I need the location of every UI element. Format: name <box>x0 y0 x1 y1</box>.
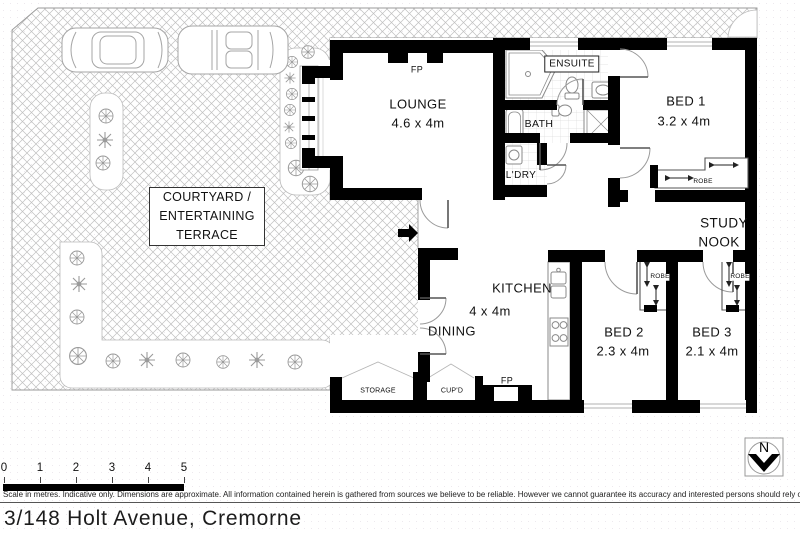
lounge-label: LOUNGE <box>389 98 446 111</box>
courtyard-label-line1: COURTYARD / <box>163 188 251 207</box>
north-arrow-icon: N <box>744 437 786 479</box>
bed2-dims: 2.3 x 4m <box>596 345 649 358</box>
north-letter: N <box>759 439 769 455</box>
storage-label: STORAGE <box>360 388 396 395</box>
lounge-dims: 4.6 x 4m <box>391 117 444 130</box>
car-icon-2 <box>178 26 288 74</box>
floorplan-drawing <box>0 0 800 450</box>
courtyard-label-line2: ENTERTAINING <box>159 207 255 226</box>
bed3-dims: 2.1 x 4m <box>685 345 738 358</box>
courtyard-label: COURTYARD / ENTERTAINING TERRACE <box>149 187 265 246</box>
scale-tick-0: 0 <box>1 462 7 474</box>
study-nook-label-2: NOOK <box>698 235 739 249</box>
disclaimer-text: Scale in metres. Indicative only. Dimens… <box>0 489 800 503</box>
scale-tick-5: 5 <box>181 462 187 474</box>
scale-tick-2: 2 <box>73 462 79 474</box>
bed3-label: BED 3 <box>692 326 732 339</box>
bed1-dims: 3.2 x 4m <box>657 115 710 128</box>
kitchen-label: KITCHEN <box>492 282 552 295</box>
study-nook-label-1: STUDY <box>700 216 748 230</box>
address-title: 3/148 Holt Avenue, Cremorne <box>4 507 302 531</box>
car-icon <box>62 28 168 72</box>
bath-label: BATH <box>525 119 554 130</box>
laundry-label: L'DRY <box>506 171 536 181</box>
fireplace-label-lounge: FP <box>411 66 423 75</box>
bed1-label: BED 1 <box>666 95 706 108</box>
courtyard-label-line3: TERRACE <box>176 226 238 245</box>
floorplan-page: LOUNGE 4.6 x 4m FP ENSUITE BATH L'DRY BE… <box>0 0 800 534</box>
robe-label-bed3: ROBE <box>730 274 749 281</box>
scale-tick-3: 3 <box>109 462 115 474</box>
scale-tick-4: 4 <box>145 462 151 474</box>
cupboard-label: CUP'D <box>441 388 463 395</box>
scale-tick-1: 1 <box>37 462 43 474</box>
kitchen-dims: 4 x 4m <box>469 305 510 318</box>
ensuite-label: ENSUITE <box>544 56 599 73</box>
fireplace-label-kitchen: FP <box>501 377 513 386</box>
bed2-label: BED 2 <box>604 326 644 339</box>
robe-label-bed2: ROBE <box>650 274 669 281</box>
dining-label: DINING <box>428 325 476 338</box>
robe-label-bed1: ROBE <box>693 179 712 186</box>
